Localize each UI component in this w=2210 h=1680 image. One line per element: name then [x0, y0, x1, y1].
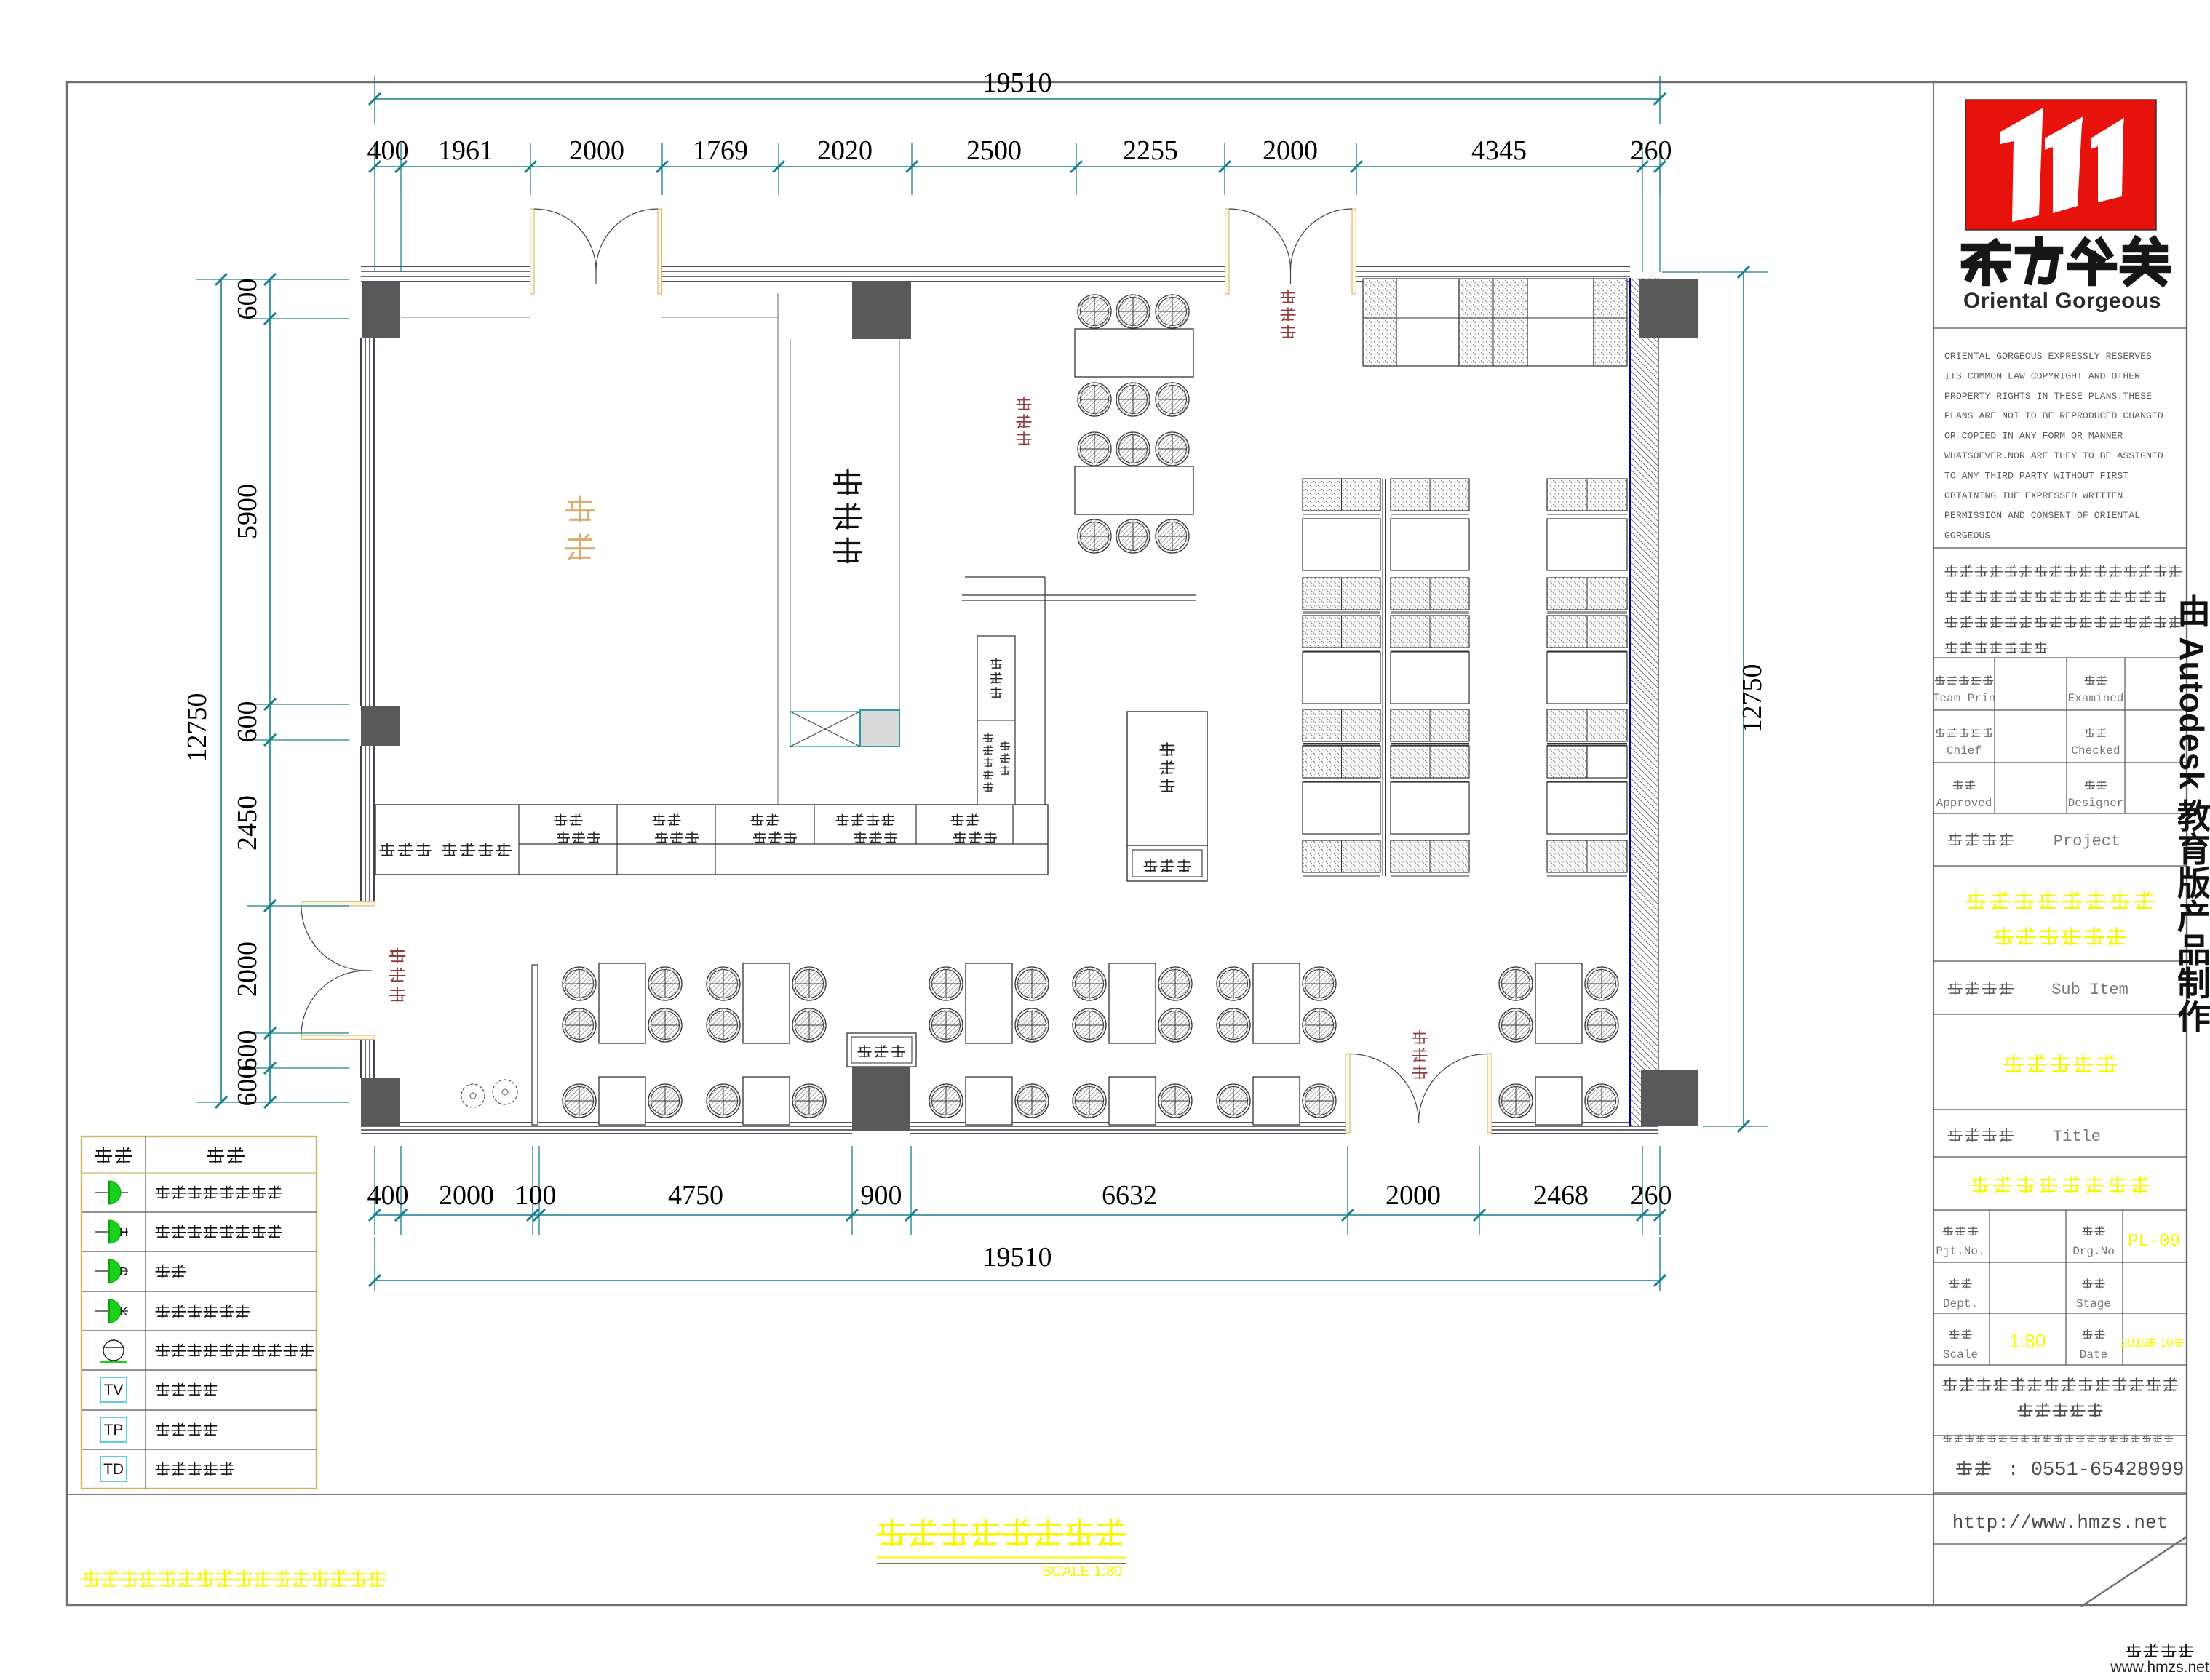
- svg-text:ORIENTAL GORGEOUS EXPRESSLY RE: ORIENTAL GORGEOUS EXPRESSLY RESERVES: [1944, 351, 2152, 362]
- svg-text:Title: Title: [2053, 1128, 2101, 1146]
- svg-text:2000: 2000: [569, 135, 624, 166]
- svg-text:D: D: [119, 1266, 128, 1278]
- svg-text:6632: 6632: [1102, 1180, 1157, 1211]
- svg-text:Drg.No: Drg.No: [2072, 1245, 2115, 1258]
- svg-text:1961: 1961: [438, 135, 493, 166]
- svg-text:K: K: [120, 1306, 128, 1318]
- svg-text:PROPERTY RIGHTS IN THESE PLANS: PROPERTY RIGHTS IN THESE PLANS.THESE: [1944, 391, 2152, 402]
- svg-text:2000: 2000: [439, 1180, 494, 1211]
- svg-text:400: 400: [367, 135, 409, 166]
- svg-text:Checked: Checked: [2071, 744, 2120, 757]
- svg-text:Scale: Scale: [1943, 1348, 1978, 1361]
- svg-text:4750: 4750: [668, 1180, 723, 1211]
- svg-text:Sub Item: Sub Item: [2051, 981, 2128, 999]
- svg-text:1:80: 1:80: [2009, 1330, 2046, 1352]
- svg-text:2500: 2500: [966, 135, 1022, 166]
- svg-text:12750: 12750: [1737, 664, 1768, 733]
- svg-text:OBTAINING THE EXPRESSED WRITTE: OBTAINING THE EXPRESSED WRITTEN: [1944, 490, 2123, 501]
- svg-text:PL-09: PL-09: [2128, 1232, 2180, 1251]
- svg-text:TD: TD: [103, 1461, 124, 1478]
- svg-text:2000: 2000: [1386, 1180, 1441, 1211]
- svg-text:Oriental Gorgeous: Oriental Gorgeous: [1963, 289, 2161, 313]
- svg-text:2020: 2020: [817, 135, 873, 166]
- svg-text:600: 600: [232, 279, 263, 320]
- svg-text:Team Prin: Team Prin: [1933, 692, 1995, 705]
- svg-text:Dept.: Dept.: [1943, 1297, 1978, 1310]
- svg-text:19510: 19510: [983, 1242, 1052, 1273]
- svg-text:600: 600: [232, 701, 263, 743]
- svg-text:2000: 2000: [1263, 135, 1318, 166]
- svg-text:19510: 19510: [983, 68, 1052, 98]
- svg-text:GORGEOUS: GORGEOUS: [1944, 530, 1990, 541]
- svg-text:5900: 5900: [232, 484, 263, 539]
- svg-text:www.hmzs.net: www.hmzs.net: [2110, 1659, 2209, 1676]
- svg-text:4345: 4345: [1471, 135, 1527, 166]
- svg-text:Chief: Chief: [1947, 744, 1982, 757]
- svg-text:PERMISSION AND CONSENT OF ORIE: PERMISSION AND CONSENT OF ORIENTAL: [1944, 510, 2140, 521]
- svg-text:900: 900: [861, 1180, 902, 1211]
- svg-text:TP: TP: [104, 1422, 124, 1438]
- svg-text:Stage: Stage: [2076, 1297, 2111, 1310]
- svg-text:100: 100: [515, 1180, 557, 1211]
- svg-text:600: 600: [232, 1065, 263, 1107]
- svg-text:TV: TV: [104, 1382, 124, 1398]
- svg-text:: 0551-65428999: : 0551-65428999: [2007, 1460, 2184, 1481]
- svg-text:Date: Date: [2080, 1348, 2107, 1361]
- svg-text:ITS COMMON LAW COPYRIGHT AND O: ITS COMMON LAW COPYRIGHT AND OTHER: [1944, 370, 2140, 381]
- svg-text:TO ANY THIRD PARTY WITHOUT FIR: TO ANY THIRD PARTY WITHOUT FIRST: [1944, 470, 2128, 481]
- svg-text:Examined: Examined: [2068, 692, 2124, 705]
- svg-text:OR COPIED IN ANY FORM OR MANNE: OR COPIED IN ANY FORM OR MANNER: [1944, 431, 2123, 442]
- svg-text:260: 260: [1631, 1180, 1672, 1211]
- svg-text:Designer: Designer: [2068, 797, 2124, 810]
- svg-text:2255: 2255: [1123, 135, 1178, 166]
- svg-text:H: H: [119, 1227, 128, 1239]
- svg-text:http://www.hmzs.net: http://www.hmzs.net: [1952, 1512, 2168, 1534]
- svg-text:2010: 2010: [2120, 1336, 2148, 1350]
- svg-text:PLANS ARE NOT TO BE REPRODUCED: PLANS ARE NOT TO BE REPRODUCED CHANGED: [1944, 410, 2163, 421]
- svg-text:SCALE 1:80: SCALE 1:80: [1042, 1564, 1122, 1580]
- svg-text:10: 10: [2160, 1336, 2174, 1350]
- svg-text:2450: 2450: [232, 795, 263, 851]
- svg-text:1769: 1769: [693, 135, 748, 166]
- svg-text:Approved: Approved: [1936, 797, 1992, 810]
- svg-text:2468: 2468: [1533, 1180, 1589, 1211]
- svg-text:400: 400: [367, 1180, 409, 1211]
- svg-text:12750: 12750: [182, 693, 212, 763]
- svg-text:Project: Project: [2054, 832, 2120, 851]
- svg-text:260: 260: [1631, 135, 1672, 166]
- svg-text:由 Autodesk 教育版产品制作: 由 Autodesk 教育版产品制作: [2173, 594, 2210, 1033]
- svg-text:Pjt.No.: Pjt.No.: [1936, 1245, 1984, 1258]
- svg-text:2000: 2000: [232, 941, 263, 997]
- svg-text:WHATSOEVER.NOR ARE THEY TO BE: WHATSOEVER.NOR ARE THEY TO BE ASSIGNED: [1944, 450, 2163, 461]
